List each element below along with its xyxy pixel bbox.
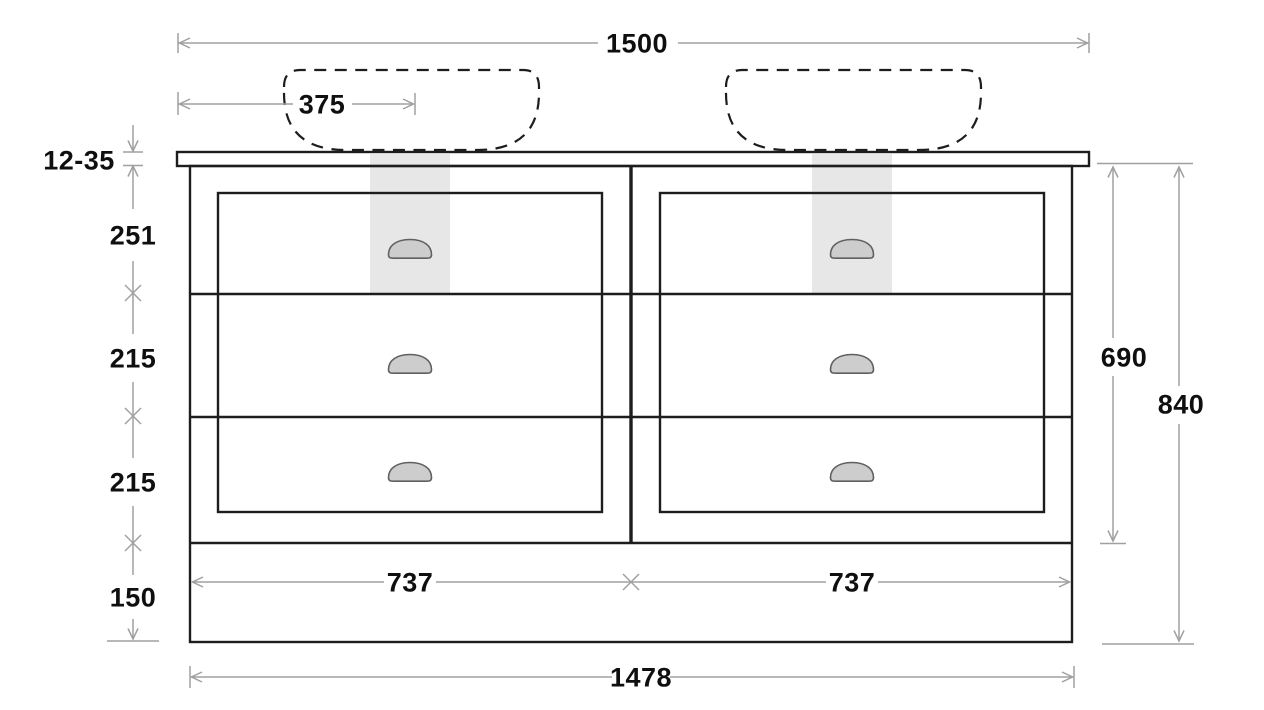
dim-overall-height: 840 bbox=[1102, 167, 1204, 644]
dim-label-countertop-width: 1500 bbox=[606, 29, 668, 59]
drawer-handle bbox=[831, 355, 874, 374]
drawer-handle bbox=[389, 355, 432, 374]
sink-strip-right bbox=[812, 154, 892, 294]
dim-label-carcass-height: 690 bbox=[1101, 343, 1148, 373]
vanity-dimension-diagram: 1500 375 12-35 251 215 215 150 bbox=[0, 0, 1264, 710]
sink-strip-left bbox=[370, 154, 450, 294]
dim-label-countertop-thickness: 12-35 bbox=[43, 146, 115, 176]
dim-label-middle-drawer-height: 215 bbox=[110, 344, 157, 374]
dim-label-right-drawer-width: 737 bbox=[829, 568, 876, 598]
dim-countertop-thickness: 12-35 bbox=[43, 125, 143, 177]
dim-label-plinth-height: 150 bbox=[110, 583, 157, 613]
basins bbox=[284, 70, 981, 150]
vanity-cabinet bbox=[177, 152, 1089, 642]
dim-left-heights: 251 215 215 150 bbox=[107, 166, 159, 641]
dim-label-left-drawer-width: 737 bbox=[387, 568, 434, 598]
countertop-fill bbox=[177, 152, 1089, 166]
drawer-handle bbox=[831, 463, 874, 482]
dim-basin-offset: 375 bbox=[178, 90, 415, 120]
drawer-handle bbox=[389, 240, 432, 259]
dim-label-overall-height: 840 bbox=[1158, 390, 1205, 420]
dim-label-top-drawer-height: 251 bbox=[110, 221, 157, 251]
basin-outline-right bbox=[726, 70, 981, 150]
dim-countertop-width: 1500 bbox=[178, 29, 1089, 59]
diagram-canvas: 1500 375 12-35 251 215 215 150 bbox=[0, 0, 1264, 710]
dim-carcass-width: 1478 bbox=[190, 663, 1074, 693]
drawer-handle bbox=[389, 463, 432, 482]
dim-label-basin-offset: 375 bbox=[299, 90, 346, 120]
drawer-handle bbox=[831, 240, 874, 259]
dim-label-bottom-drawer-height: 215 bbox=[110, 468, 157, 498]
dim-label-carcass-width: 1478 bbox=[610, 663, 672, 693]
